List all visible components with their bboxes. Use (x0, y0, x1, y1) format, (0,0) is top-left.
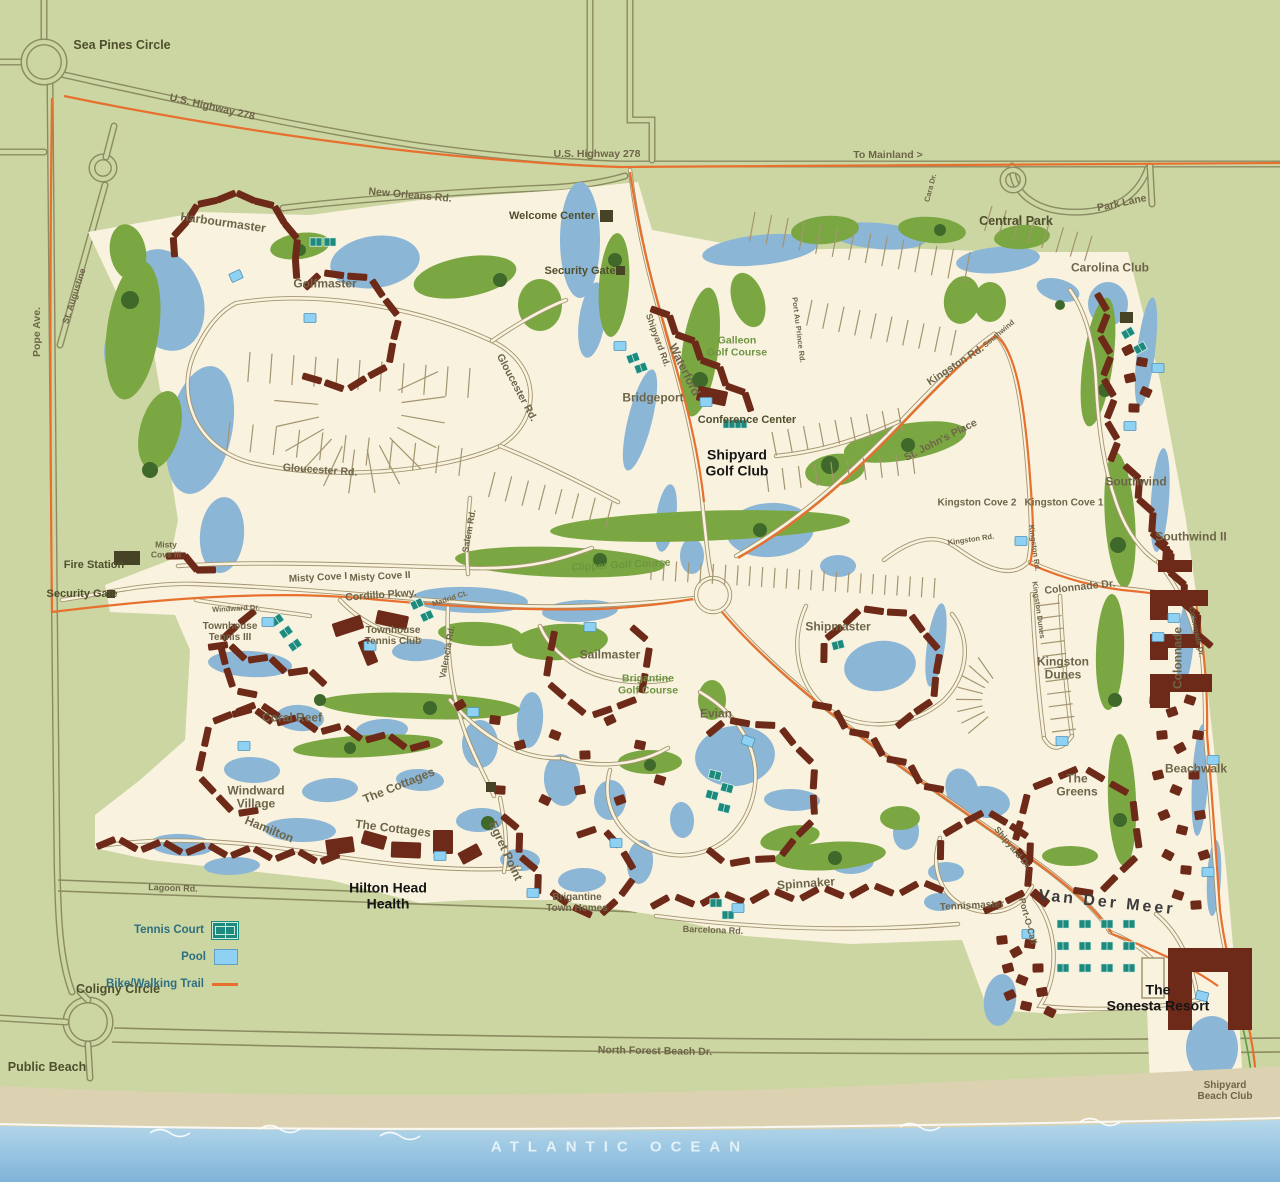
golf-fairway (974, 282, 1006, 322)
tree (423, 701, 437, 715)
water-body (560, 182, 600, 298)
pool-icon (584, 623, 596, 632)
building (1128, 403, 1139, 412)
legend-tennis-label: Tennis Court (134, 924, 204, 936)
security-gate-marker (616, 266, 625, 275)
tree (608, 253, 622, 267)
building (1156, 730, 1168, 740)
building (1158, 560, 1192, 572)
security-gate-marker (107, 590, 115, 598)
building (1142, 958, 1164, 998)
building (489, 715, 501, 725)
building (755, 721, 775, 729)
tree (1108, 693, 1122, 707)
tree (593, 553, 607, 567)
legend-pool-label: Pool (181, 951, 206, 963)
building (391, 841, 422, 858)
tree (644, 759, 656, 771)
building (887, 609, 907, 617)
pool-icon (732, 904, 744, 913)
clubhouse-marker (486, 782, 496, 792)
golf-fairway (880, 806, 920, 830)
building (1032, 963, 1043, 972)
tree (314, 694, 326, 706)
pool-icon (1152, 633, 1164, 642)
road (88, 1044, 90, 1078)
building (196, 566, 216, 573)
pool-icon (1202, 868, 1214, 877)
tree (1113, 813, 1127, 827)
water-body (928, 862, 964, 882)
pool-icon (1056, 737, 1068, 746)
building (1036, 987, 1048, 998)
legend-item-pool: Pool (58, 949, 238, 965)
building (292, 259, 300, 279)
building (433, 830, 453, 854)
tree (753, 523, 767, 537)
building (516, 833, 524, 853)
welcome-center-marker (600, 210, 613, 222)
tree (1055, 300, 1065, 310)
pool-icon (1124, 422, 1136, 431)
building (810, 795, 818, 815)
tree (692, 372, 708, 388)
tennis-court-icon (310, 238, 322, 246)
pool-icon (434, 852, 446, 861)
building (1136, 357, 1148, 368)
clubhouse-marker (1120, 312, 1133, 323)
pool-icon (1168, 614, 1180, 623)
tree (828, 851, 842, 865)
building (1135, 479, 1143, 499)
building (1148, 512, 1156, 532)
pool-icon (610, 839, 622, 848)
building (347, 273, 367, 281)
building (755, 855, 775, 863)
tennis-court-icon (1079, 920, 1091, 928)
tennis-court-icon (1057, 920, 1069, 928)
pool-icon (214, 949, 238, 965)
tree (344, 742, 356, 754)
tree (121, 291, 139, 309)
tree (901, 438, 915, 452)
building (820, 643, 827, 663)
pool-icon (238, 742, 250, 751)
building (1192, 730, 1204, 741)
legend-trail-label: Bike/Walking Trail (106, 978, 204, 990)
pool-icon (304, 314, 316, 323)
pool-icon (364, 642, 376, 651)
tennis-court-icon (1101, 942, 1113, 950)
fire-station-marker (114, 551, 140, 565)
tennis-court-icon (710, 899, 722, 907)
legend-item-trail: Bike/Walking Trail (58, 976, 238, 992)
building (937, 840, 944, 860)
pool-icon (1152, 364, 1164, 373)
building (1193, 615, 1201, 635)
building (1194, 810, 1206, 821)
map-canvas (0, 0, 1280, 1182)
tennis-court-icon (324, 238, 336, 246)
pool-icon (1207, 756, 1219, 765)
building (1180, 865, 1192, 875)
trail-line-icon (212, 983, 238, 986)
building (1190, 900, 1202, 910)
building (170, 237, 178, 257)
legend-item-tennis-court: Tennis Court (58, 922, 238, 938)
building (1024, 939, 1036, 949)
building (579, 750, 590, 759)
map-legend: Tennis Court Pool Bike/Walking Trail (58, 922, 238, 1003)
golf-fairway (1042, 846, 1098, 866)
tree (142, 462, 158, 478)
building (810, 769, 818, 789)
tennis-court-icon (1057, 964, 1069, 972)
tennis-court-icon (1101, 964, 1113, 972)
building (1189, 771, 1200, 780)
tree (493, 273, 507, 287)
pool-icon (614, 342, 626, 351)
tennis-court-icon (1079, 964, 1091, 972)
tennis-court-icon (735, 420, 747, 428)
pool-icon (527, 889, 539, 898)
tree (481, 816, 495, 830)
tennis-court-icon (1057, 942, 1069, 950)
building (996, 935, 1008, 945)
tennis-court-icon (1123, 920, 1135, 928)
tennis-court-icon (723, 420, 735, 428)
shipyard-plantation-map: Sea Pines CircleU.S. Highway 278U.S. Hig… (0, 0, 1280, 1182)
pool-icon (1015, 537, 1027, 546)
pool-icon (262, 618, 274, 627)
tennis-court-icon (1123, 964, 1135, 972)
water-body (820, 555, 856, 577)
tree (934, 224, 946, 236)
pool-icon (467, 708, 479, 717)
pool-icon (700, 398, 712, 407)
tree (1110, 537, 1126, 553)
tennis-court-icon (1123, 942, 1135, 950)
tennis-court-icon (1079, 942, 1091, 950)
tennis-court-icon (1101, 920, 1113, 928)
tree (821, 456, 839, 474)
pool-icon (1022, 930, 1034, 939)
road (1150, 166, 1152, 204)
tennis-court-icon (212, 922, 238, 939)
